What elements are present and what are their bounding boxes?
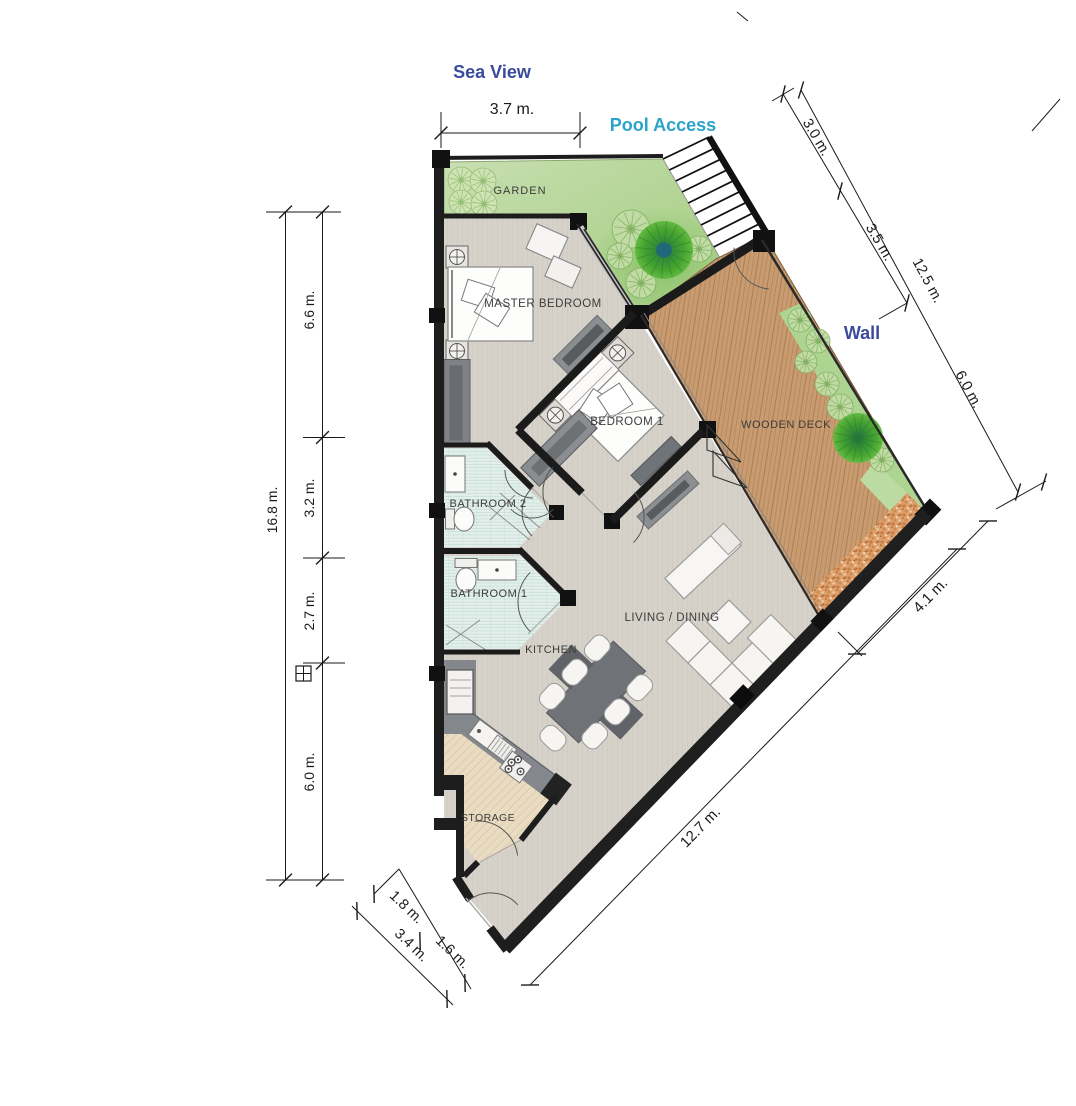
svg-text:Wall: Wall: [844, 323, 880, 343]
svg-text:BEDROOM 1: BEDROOM 1: [590, 416, 664, 428]
svg-text:BATHROOM 2: BATHROOM 2: [450, 498, 527, 510]
svg-text:16.8 m.: 16.8 m.: [264, 487, 280, 534]
svg-text:GARDEN: GARDEN: [493, 185, 546, 197]
svg-text:BATHROOM 1: BATHROOM 1: [451, 588, 528, 600]
svg-text:2.7 m.: 2.7 m.: [301, 592, 317, 631]
svg-text:STORAGE: STORAGE: [461, 812, 515, 824]
svg-text:WOODEN DECK: WOODEN DECK: [741, 419, 831, 431]
svg-text:LIVING / DINING: LIVING / DINING: [624, 612, 719, 624]
svg-text:MASTER BEDROOM: MASTER BEDROOM: [484, 298, 602, 310]
svg-text:6.6 m.: 6.6 m.: [301, 291, 317, 330]
svg-text:Pool Access: Pool Access: [610, 115, 716, 135]
svg-text:KITCHEN: KITCHEN: [525, 644, 577, 656]
svg-text:6.0 m.: 6.0 m.: [301, 753, 317, 792]
svg-text:3.2 m.: 3.2 m.: [301, 479, 317, 518]
svg-text:Sea View: Sea View: [453, 62, 532, 82]
svg-text:3.7 m.: 3.7 m.: [490, 101, 534, 118]
